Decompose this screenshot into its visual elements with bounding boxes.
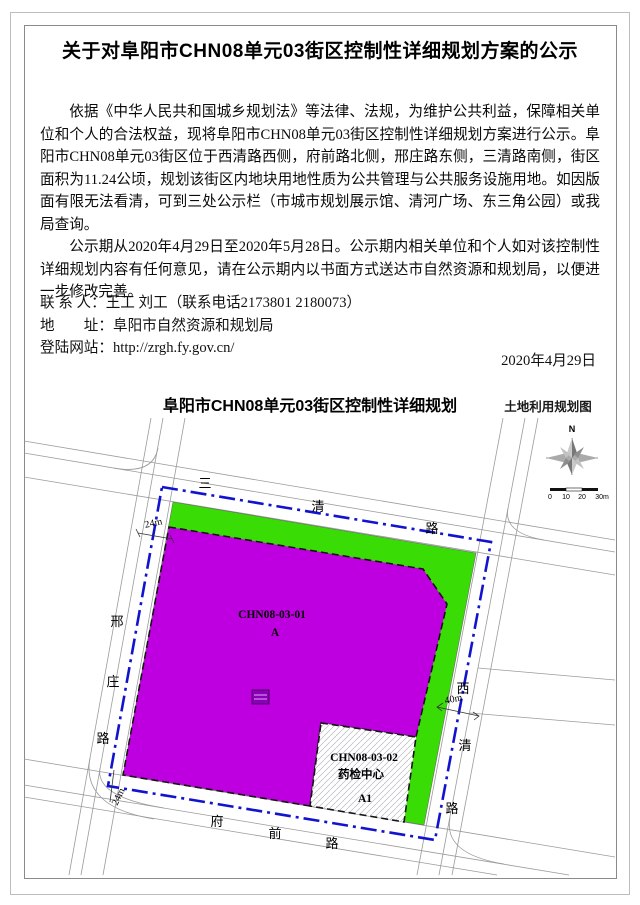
- contact-website-url: http://zrgh.fy.gov.cn/: [113, 340, 234, 356]
- notice-page: 关于对阜阳市CHN08单元03街区控制性详细规划方案的公示 依据《中华人民共和国…: [0, 0, 640, 905]
- svg-text:30m: 30m: [595, 494, 609, 501]
- svg-text:庄: 庄: [106, 674, 119, 689]
- map-title: 阜阳市CHN08单元03街区控制性详细规划: [110, 392, 510, 416]
- contact-person-value: 王工 刘工（联系电话2173801 2180073）: [106, 295, 361, 311]
- svg-text:清: 清: [311, 499, 324, 514]
- parcel1-code-label: CHN08-03-01: [238, 609, 306, 621]
- notice-title: 关于对阜阳市CHN08单元03街区控制性详细规划方案的公示: [34, 36, 606, 63]
- svg-text:0: 0: [548, 494, 552, 501]
- parcel2-name-label: 药检中心: [338, 767, 384, 781]
- svg-text:清: 清: [458, 738, 471, 753]
- svg-text:前: 前: [268, 826, 281, 841]
- svg-text:20: 20: [578, 494, 586, 501]
- map-type-label: 土地利用规划图: [488, 396, 608, 415]
- notice-date: 2020年4月29日: [501, 349, 596, 370]
- svg-text:10: 10: [562, 494, 570, 501]
- institution-symbol-icon: [252, 690, 269, 704]
- svg-text:路: 路: [325, 836, 338, 851]
- compass-icon: [546, 438, 598, 475]
- parcel2-code-label: CHN08-03-02: [330, 752, 398, 764]
- contact-block: 联 系 人：王工 刘工（联系电话2173801 2180073） 地 址：阜阳市…: [40, 292, 361, 360]
- contact-website-label: 登陆网站：: [40, 340, 113, 356]
- notice-body: 依据《中华人民共和国城乡规划法》等法律、法规，为维护公共利益，保障相关单位和个人…: [40, 101, 600, 304]
- parcel2-use-label: A1: [358, 793, 372, 805]
- svg-text:邢: 邢: [110, 614, 123, 629]
- paragraph-1: 依据《中华人民共和国城乡规划法》等法律、法规，为维护公共利益，保障相关单位和个人…: [40, 101, 600, 236]
- svg-text:三: 三: [198, 476, 211, 491]
- svg-text:府: 府: [210, 814, 223, 829]
- contact-address-row: 地 址：阜阳市自然资源和规划局: [40, 315, 361, 338]
- parcel1-use-label: A: [271, 627, 280, 639]
- dimension-left-road-label: 24m: [144, 516, 164, 531]
- contact-person-row: 联 系 人：王工 刘工（联系电话2173801 2180073）: [40, 292, 361, 315]
- land-use-map: CHN08-03-01 A CHN08-03-02 药检中心 A1 三 清 路 …: [24, 418, 615, 877]
- scale-bar: 0 10 20 30m: [548, 488, 609, 501]
- svg-text:路: 路: [425, 521, 438, 536]
- contact-website-row: 登陆网站：http://zrgh.fy.gov.cn/: [40, 337, 361, 360]
- svg-text:路: 路: [445, 801, 458, 816]
- compass-north-label: N: [569, 424, 576, 434]
- contact-address-value: 阜阳市自然资源和规划局: [113, 318, 274, 334]
- contact-person-label: 联 系 人：: [40, 295, 106, 311]
- contact-address-label: 地 址：: [40, 318, 113, 334]
- svg-text:路: 路: [96, 731, 109, 746]
